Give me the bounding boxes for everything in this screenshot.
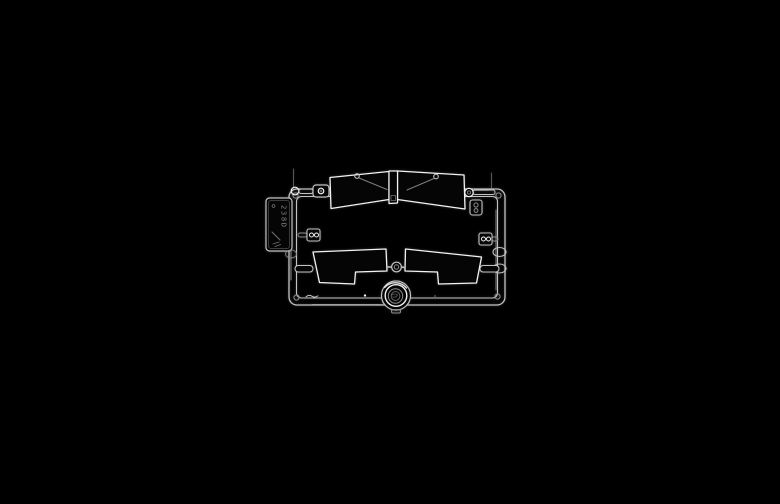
dim-speck (434, 295, 436, 297)
clear-parts-sprue-photo: 238D (250, 162, 512, 314)
side-window-left (313, 249, 387, 284)
grommet-outer (392, 262, 402, 272)
molded-tag: 238D (266, 198, 292, 251)
gate-pill-right (480, 266, 499, 273)
side-window-right (405, 249, 482, 284)
clip-left-body (313, 185, 329, 197)
bright-speck (364, 294, 366, 296)
lens-part (382, 281, 411, 313)
sprue-drawing: 238D (250, 162, 512, 314)
side-windows (313, 249, 482, 284)
scratch-mark (306, 295, 318, 297)
twin-hole-clips (298, 229, 498, 245)
windshield-part (330, 171, 465, 209)
clip-left-part (299, 185, 329, 197)
gate-pill-left (295, 266, 313, 273)
bracket-right-part (465, 188, 495, 215)
clip-stub-left (298, 233, 307, 237)
lug-right-upper (493, 248, 506, 257)
bracket-knob (465, 188, 473, 196)
photo-canvas: 238D (0, 0, 780, 504)
clip-left-runner-bar (299, 189, 313, 194)
rail-marks (306, 294, 436, 297)
grommet-part (388, 262, 405, 272)
windshield-center-divider (389, 171, 398, 204)
tag-embossed-text: 238D (280, 205, 289, 229)
